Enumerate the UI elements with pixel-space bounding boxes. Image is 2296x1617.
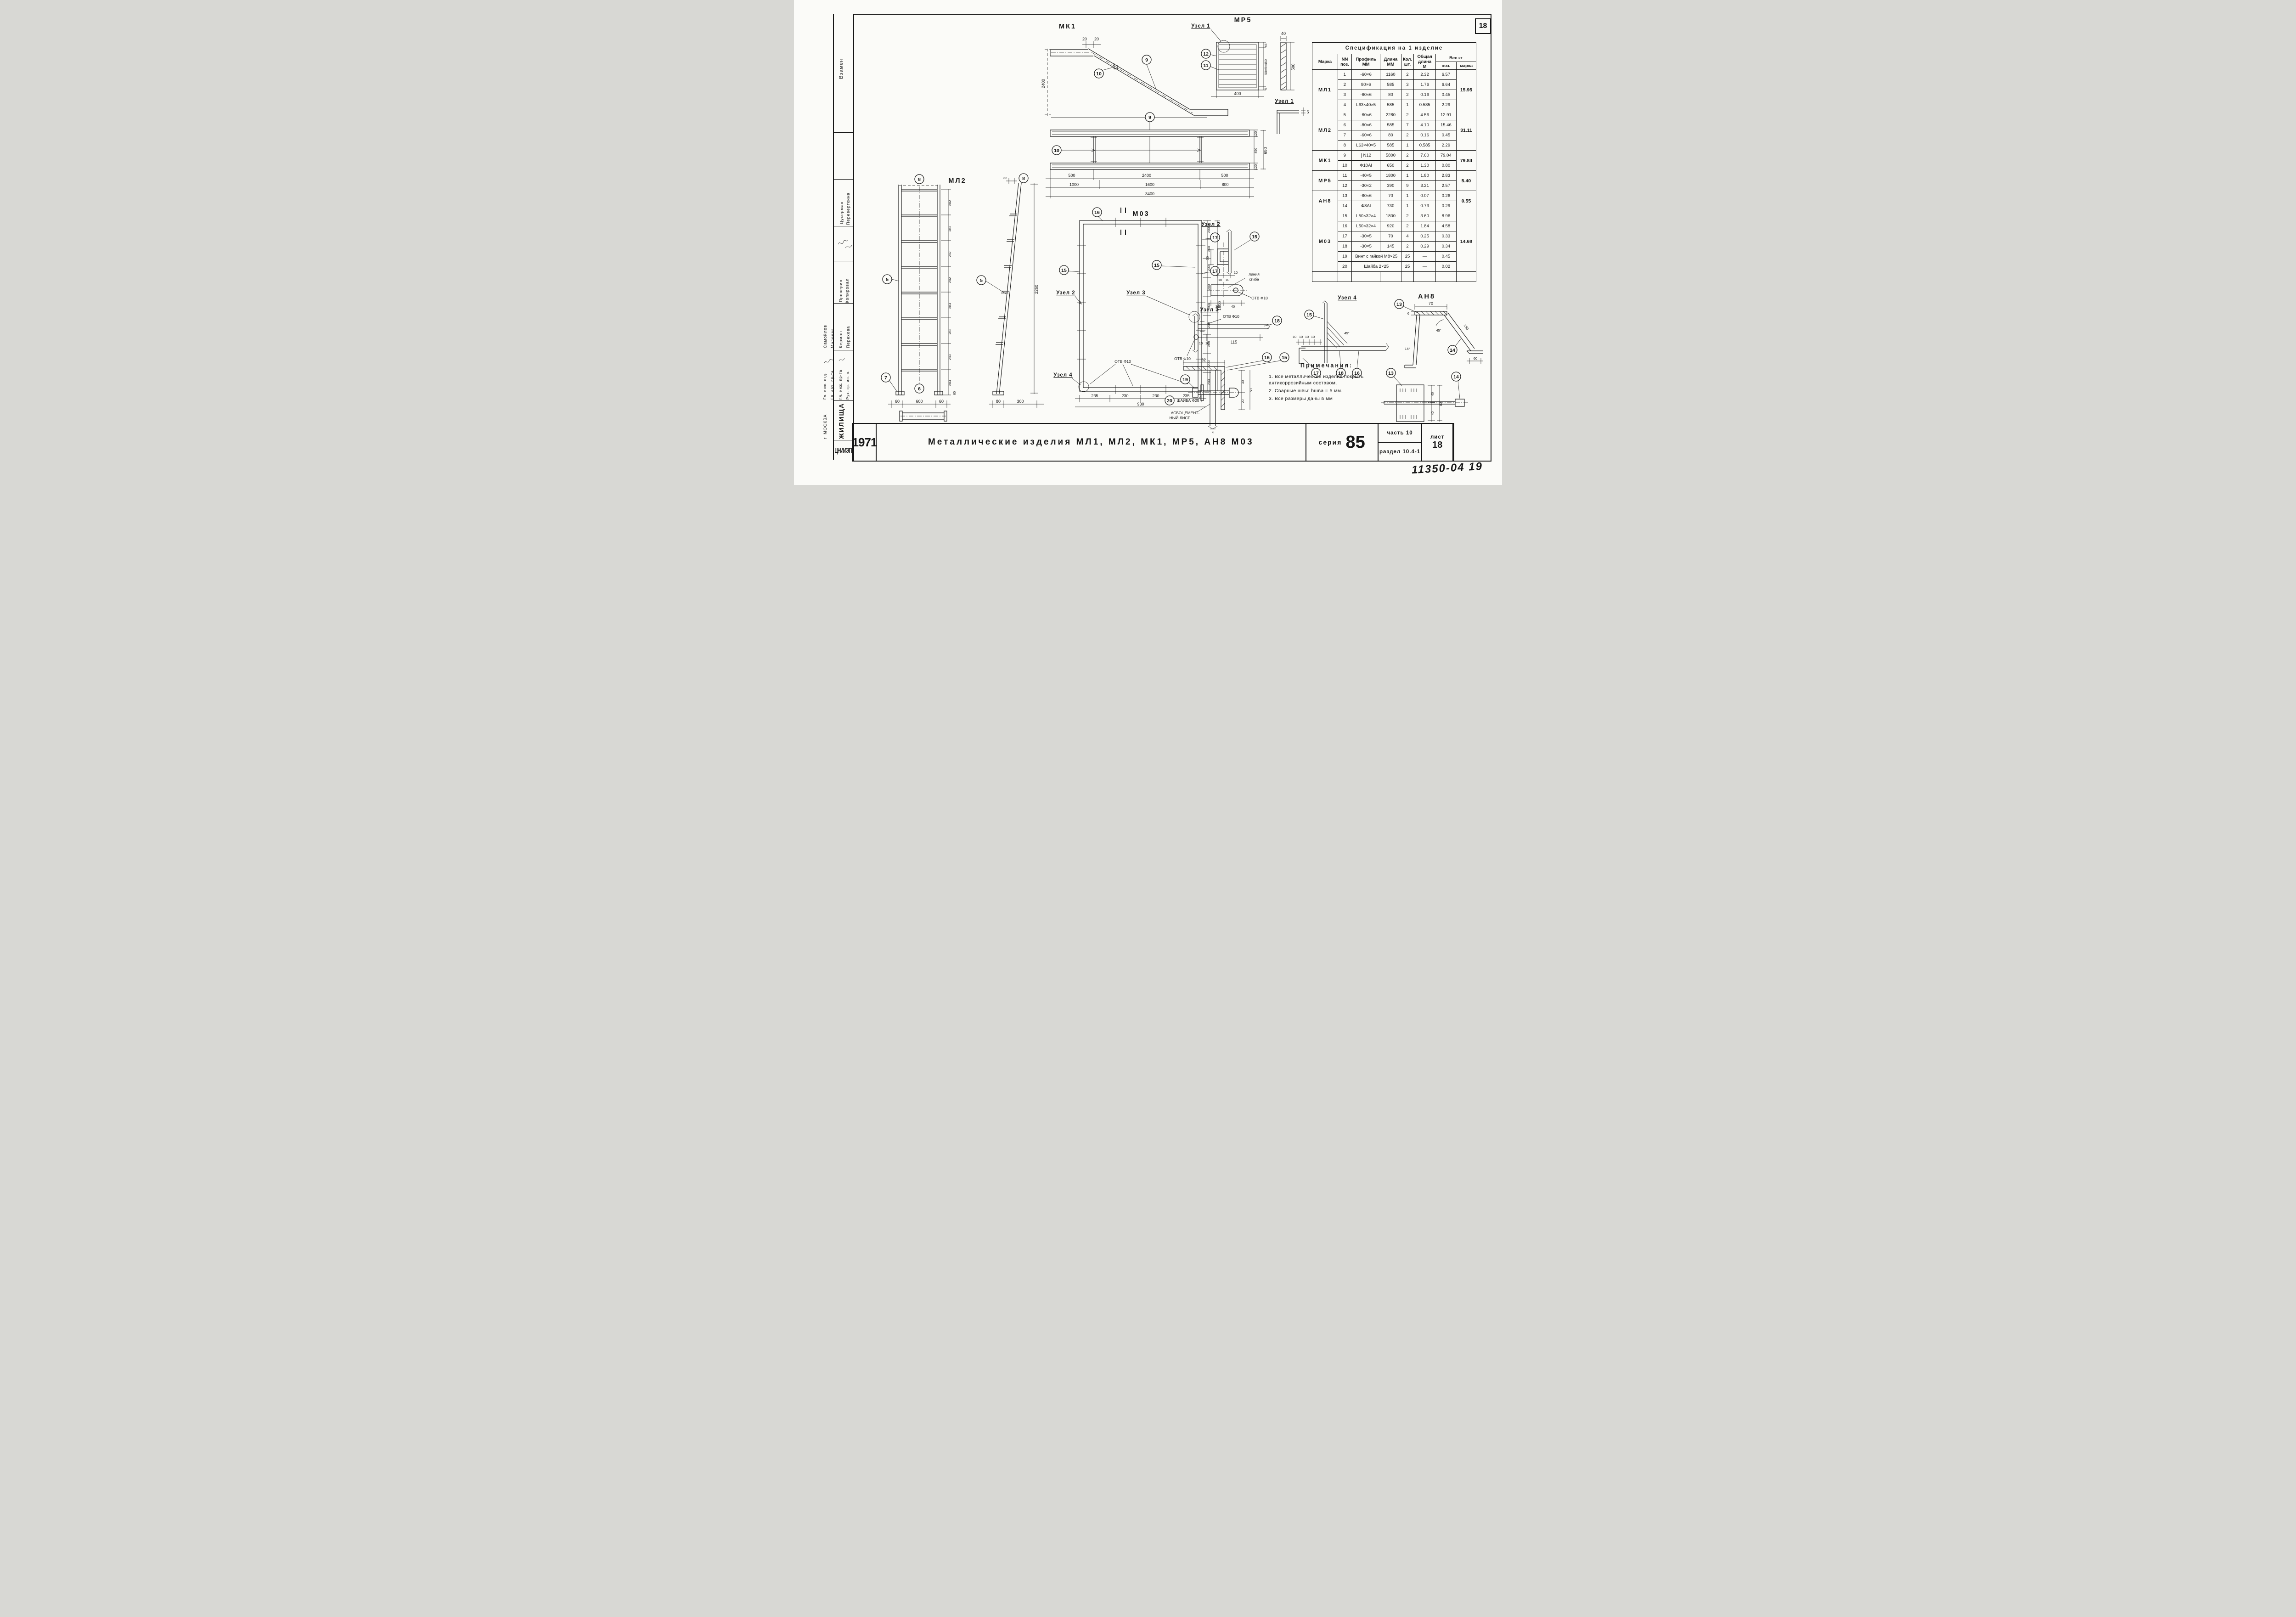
spec-cell: 2 xyxy=(1401,70,1414,80)
spec-cell: 4.58 xyxy=(1435,221,1456,231)
spec-marka-cell: МЛ1 xyxy=(1312,70,1338,110)
notes-block: Примечания: 1. Все металлические изделия… xyxy=(1269,362,1384,404)
spec-h-profile: Профиль ММ xyxy=(1352,54,1380,70)
spec-cell: 2 xyxy=(1401,242,1414,252)
stamp-role-4: Рук. гр. ин. ч. xyxy=(846,351,850,400)
stamp-divider xyxy=(833,350,853,350)
stamp-kopiroval: Копировал xyxy=(845,263,850,303)
spec-cell: 80 xyxy=(1380,130,1401,141)
spec-cell: 0.34 xyxy=(1435,242,1456,252)
spec-marka-cell: МЛ2 xyxy=(1312,110,1338,151)
sheet-number-box: 18 xyxy=(1475,18,1491,34)
spec-cell: 0.25 xyxy=(1414,231,1435,242)
spec-cell: 145 xyxy=(1380,242,1401,252)
spec-group-weight-cell: 31.11 xyxy=(1456,110,1476,151)
note-item: 1. Все металлические изделия покрыть ант… xyxy=(1269,373,1384,386)
note-item: 3. Все размеры даны в мм xyxy=(1269,395,1384,402)
spec-cell: 650 xyxy=(1380,161,1401,171)
spec-cell: 6 xyxy=(1338,120,1351,130)
spec-cell: 80×6 xyxy=(1352,80,1380,90)
notes-title: Примечания: xyxy=(1269,362,1384,370)
spec-cell: -40×5 xyxy=(1352,171,1380,181)
spec-cell: 1.76 xyxy=(1414,80,1435,90)
spec-cell: 0.585 xyxy=(1414,100,1435,110)
stamp-divider xyxy=(833,261,853,261)
spec-cell: 585 xyxy=(1380,141,1401,151)
spec-cell: 25 xyxy=(1401,262,1414,272)
spec-row: М0315L50×32×4180023.608.9614.68 xyxy=(1312,211,1476,221)
spec-h-total: Общая длина М xyxy=(1414,54,1435,70)
spec-cell: 4 xyxy=(1338,100,1351,110)
spec-marka-cell: МР5 xyxy=(1312,171,1338,191)
title-block-part-section: часть 10 раздел 10.4-1 xyxy=(1379,424,1423,461)
spec-cell: 585 xyxy=(1380,100,1401,110)
spec-cell: 2 xyxy=(1401,151,1414,161)
spec-cell: 14 xyxy=(1338,201,1351,211)
spec-cell: 10 xyxy=(1338,161,1351,171)
spec-cell: 1 xyxy=(1338,70,1351,80)
spec-group-weight-cell: 79.84 xyxy=(1456,151,1476,171)
spec-cell: 920 xyxy=(1380,221,1401,231)
spec-cell: 2.83 xyxy=(1435,171,1456,181)
spec-cell xyxy=(1312,272,1338,282)
spec-cell: -80×6 xyxy=(1352,191,1380,201)
spec-cell: Шайба 2×25 xyxy=(1352,262,1401,272)
series-label: серия xyxy=(1319,439,1342,446)
spec-cell: 13 xyxy=(1338,191,1351,201)
spec-cell: 730 xyxy=(1380,201,1401,211)
spec-h-pos: NN поз. xyxy=(1338,54,1351,70)
spec-row: МЛ11-60×6116022.326.5715.95 xyxy=(1312,70,1476,80)
stamp-divider xyxy=(833,226,853,226)
sheet-value: 18 xyxy=(1432,440,1442,451)
spec-cell: 1 xyxy=(1401,100,1414,110)
spec-cell: 0.16 xyxy=(1414,130,1435,141)
spec-cell: 0.45 xyxy=(1435,90,1456,100)
spec-cell: 7.60 xyxy=(1414,151,1435,161)
spec-cell: 0.45 xyxy=(1435,252,1456,262)
part-label: часть 10 xyxy=(1379,424,1422,443)
spec-cell: 1.80 xyxy=(1414,171,1435,181)
section-label: раздел 10.4-1 xyxy=(1379,443,1422,461)
spec-cell xyxy=(1401,272,1414,282)
spec-cell: L50×32×4 xyxy=(1352,211,1380,221)
spec-title: Спецификация на 1 изделие xyxy=(1312,43,1476,54)
stamp-vzamen: Взамен xyxy=(839,28,844,79)
spec-cell xyxy=(1414,272,1435,282)
spec-cell: 9 xyxy=(1338,151,1351,161)
spec-cell xyxy=(1435,272,1456,282)
spec-cell: 2 xyxy=(1338,80,1351,90)
spec-cell: 16 xyxy=(1338,221,1351,231)
spec-row: МК19[ N12580027.6079.0479.84 xyxy=(1312,151,1476,161)
spec-cell: 0.45 xyxy=(1435,130,1456,141)
spec-group-weight-cell: 14.68 xyxy=(1456,211,1476,272)
spec-cell: 18 xyxy=(1338,242,1351,252)
spec-cell: L63×40×5 xyxy=(1352,141,1380,151)
stamp-divider xyxy=(833,400,853,401)
spec-empty-row xyxy=(1312,272,1476,282)
title-block: 1971 Металлические изделия МЛ1, МЛ2, МК1… xyxy=(852,423,1454,462)
spec-cell: -80×6 xyxy=(1352,120,1380,130)
spec-cell: 1.84 xyxy=(1414,221,1435,231)
spec-cell: 7 xyxy=(1338,130,1351,141)
spec-h-len: Длина ММ xyxy=(1380,54,1401,70)
spec-cell: 2.57 xyxy=(1435,181,1456,191)
spec-cell: 2 xyxy=(1401,161,1414,171)
spec-row: АН813-80×67010.070.260.55 xyxy=(1312,191,1476,201)
stamp-name-samoylov: Самойлов xyxy=(823,306,827,348)
spec-cell: 1 xyxy=(1401,141,1414,151)
spec-cell: 1 xyxy=(1401,201,1414,211)
note-item: 2. Сварные швы: hшва = 5 мм. xyxy=(1269,388,1384,394)
stamp-org-logo: ЦНИИЭП xyxy=(833,437,853,465)
title-block-year: 1971 xyxy=(853,424,877,461)
spec-cell: 0.29 xyxy=(1435,201,1456,211)
spec-group-weight-cell: 15.95 xyxy=(1456,70,1476,110)
spec-cell: 12.91 xyxy=(1435,110,1456,120)
title-block-sheet: лист 18 xyxy=(1422,424,1453,461)
spec-cell: -30×2 xyxy=(1352,181,1380,191)
spec-cell: 0.585 xyxy=(1414,141,1435,151)
spec-cell: 6.57 xyxy=(1435,70,1456,80)
spec-cell: Ф10АI xyxy=(1352,161,1380,171)
spec-cell: 1.30 xyxy=(1414,161,1435,171)
stamp-proveril: Проверил xyxy=(839,264,843,302)
spec-cell: L63×40×5 xyxy=(1352,100,1380,110)
spec-cell: -30×5 xyxy=(1352,242,1380,252)
spec-group-weight-cell: 0.55 xyxy=(1456,191,1476,211)
spec-cell: 4 xyxy=(1401,231,1414,242)
spec-cell: 8 xyxy=(1338,141,1351,151)
spec-h-wpos: поз. xyxy=(1435,62,1456,70)
spec-cell: 20 xyxy=(1338,262,1351,272)
spec-cell: 0.73 xyxy=(1414,201,1435,211)
spec-cell: 2 xyxy=(1401,221,1414,231)
spec-cell: 0.02 xyxy=(1435,262,1456,272)
spec-cell: 9 xyxy=(1401,181,1414,191)
spec-cell: -30×5 xyxy=(1352,231,1380,242)
spec-cell: 0.33 xyxy=(1435,231,1456,242)
spec-h-weight: Вес кг xyxy=(1435,54,1476,62)
spec-cell: 5800 xyxy=(1380,151,1401,161)
drawing-sheet: МК1 20 20 2400 10 xyxy=(794,0,1502,485)
spec-cell: 15.46 xyxy=(1435,120,1456,130)
stamp-divider xyxy=(833,179,853,180)
spec-cell: 3 xyxy=(1338,90,1351,100)
spec-cell xyxy=(1456,272,1476,282)
title-block-title: Металлические изделия МЛ1, МЛ2, МК1, МР5… xyxy=(877,424,1306,461)
spec-cell: 1800 xyxy=(1380,171,1401,181)
spec-cell: 2 xyxy=(1401,90,1414,100)
spec-cell: Винт с гайкой М8×25 xyxy=(1352,252,1401,262)
spec-cell: 2.29 xyxy=(1435,141,1456,151)
stamp-sig-name-2: Переверткина xyxy=(846,180,850,225)
stamp-role-3: Гл. инж. пр-та xyxy=(839,351,843,400)
spec-cell: 0.80 xyxy=(1435,161,1456,171)
spec-h-marka: Марка xyxy=(1312,54,1338,70)
spec-cell: 3 xyxy=(1401,80,1414,90)
spec-cell: 1 xyxy=(1401,171,1414,181)
stamp-name-kerman: Керман xyxy=(839,308,843,348)
spec-cell: 2 xyxy=(1401,211,1414,221)
spec-h-qty: Кол. шт. xyxy=(1401,54,1414,70)
spec-cell: -60×6 xyxy=(1352,90,1380,100)
spec-cell: 1800 xyxy=(1380,211,1401,221)
spec-cell: [ N12 xyxy=(1352,151,1380,161)
spec-cell: 2 xyxy=(1401,110,1414,120)
spec-cell: 6.64 xyxy=(1435,80,1456,90)
spec-cell: Ф8АI xyxy=(1352,201,1380,211)
stamp-divider xyxy=(833,303,853,304)
spec-cell: -60×6 xyxy=(1352,110,1380,120)
spec-cell xyxy=(1352,272,1380,282)
spec-cell: L50×32×4 xyxy=(1352,221,1380,231)
spec-cell: — xyxy=(1414,252,1435,262)
spec-cell: 8.96 xyxy=(1435,211,1456,221)
spec-row: МР511-40×5180011.802.835.40 xyxy=(1312,171,1476,181)
stamp-divider xyxy=(833,82,853,82)
spec-cell: 25 xyxy=(1401,252,1414,262)
spec-cell: 70 xyxy=(1380,191,1401,201)
stamp-divider xyxy=(833,132,853,133)
spec-cell: 390 xyxy=(1380,181,1401,191)
spec-row: МЛ25-60×6228024.5612.9131.11 xyxy=(1312,110,1476,120)
spec-cell: 2280 xyxy=(1380,110,1401,120)
spec-cell: 1 xyxy=(1401,191,1414,201)
spec-marka-cell: АН8 xyxy=(1312,191,1338,211)
spec-cell: 0.16 xyxy=(1414,90,1435,100)
spec-cell: 0.26 xyxy=(1435,191,1456,201)
spec-cell: 3.21 xyxy=(1414,181,1435,191)
spec-cell: 585 xyxy=(1380,120,1401,130)
stamp-name-perehova: Перехова xyxy=(846,306,850,348)
stamp-name-maseeva: Масеева xyxy=(831,307,835,348)
spec-cell xyxy=(1338,272,1351,282)
stamp-column xyxy=(833,14,854,460)
spec-cell: 19 xyxy=(1338,252,1351,262)
series-value: 85 xyxy=(1345,433,1365,452)
spec-cell: 4.10 xyxy=(1414,120,1435,130)
stamp-org-city: г. МОСКВА xyxy=(823,402,827,439)
spec-cell: 0.29 xyxy=(1414,242,1435,252)
spec-cell: 585 xyxy=(1380,80,1401,90)
stamp-role-2: Гл. арх. пр-та xyxy=(831,351,834,400)
spec-marka-cell: М03 xyxy=(1312,211,1338,272)
spec-cell: 80 xyxy=(1380,90,1401,100)
spec-cell: 5 xyxy=(1338,110,1351,120)
spec-cell: 17 xyxy=(1338,231,1351,242)
spec-marka-cell: МК1 xyxy=(1312,151,1338,171)
spec-cell: 2.29 xyxy=(1435,100,1456,110)
spec-cell: -60×6 xyxy=(1352,70,1380,80)
spec-group-weight-cell: 5.40 xyxy=(1456,171,1476,191)
sheet-label: лист xyxy=(1430,434,1444,440)
spec-cell xyxy=(1380,272,1401,282)
spec-cell: 2 xyxy=(1401,130,1414,141)
spec-table-body: МЛ11-60×6116022.326.5715.95280×658531.76… xyxy=(1312,70,1476,282)
stamp-sig-name-1: Цукерман xyxy=(840,182,844,224)
stamp-org-name: ЖИЛИЩА xyxy=(838,401,844,439)
title-block-series: серия 85 xyxy=(1306,424,1379,461)
spec-cell: 1160 xyxy=(1380,70,1401,80)
spec-cell: 7 xyxy=(1401,120,1414,130)
spec-cell: 12 xyxy=(1338,181,1351,191)
spec-table: Спецификация на 1 изделие Марка NN поз. … xyxy=(1312,42,1476,282)
spec-cell: — xyxy=(1414,262,1435,272)
spec-cell: 79.04 xyxy=(1435,151,1456,161)
spec-cell: 0.07 xyxy=(1414,191,1435,201)
spec-cell: 11 xyxy=(1338,171,1351,181)
spec-cell: 2.32 xyxy=(1414,70,1435,80)
spec-cell: 70 xyxy=(1380,231,1401,242)
spec-cell: 15 xyxy=(1338,211,1351,221)
stamp-role-1: Гл. инж. отд. xyxy=(823,352,827,400)
spec-cell: 4.56 xyxy=(1414,110,1435,120)
spec-h-wmarka: марка xyxy=(1456,62,1476,70)
spec-cell: -60×6 xyxy=(1352,130,1380,141)
spec-cell: 3.60 xyxy=(1414,211,1435,221)
